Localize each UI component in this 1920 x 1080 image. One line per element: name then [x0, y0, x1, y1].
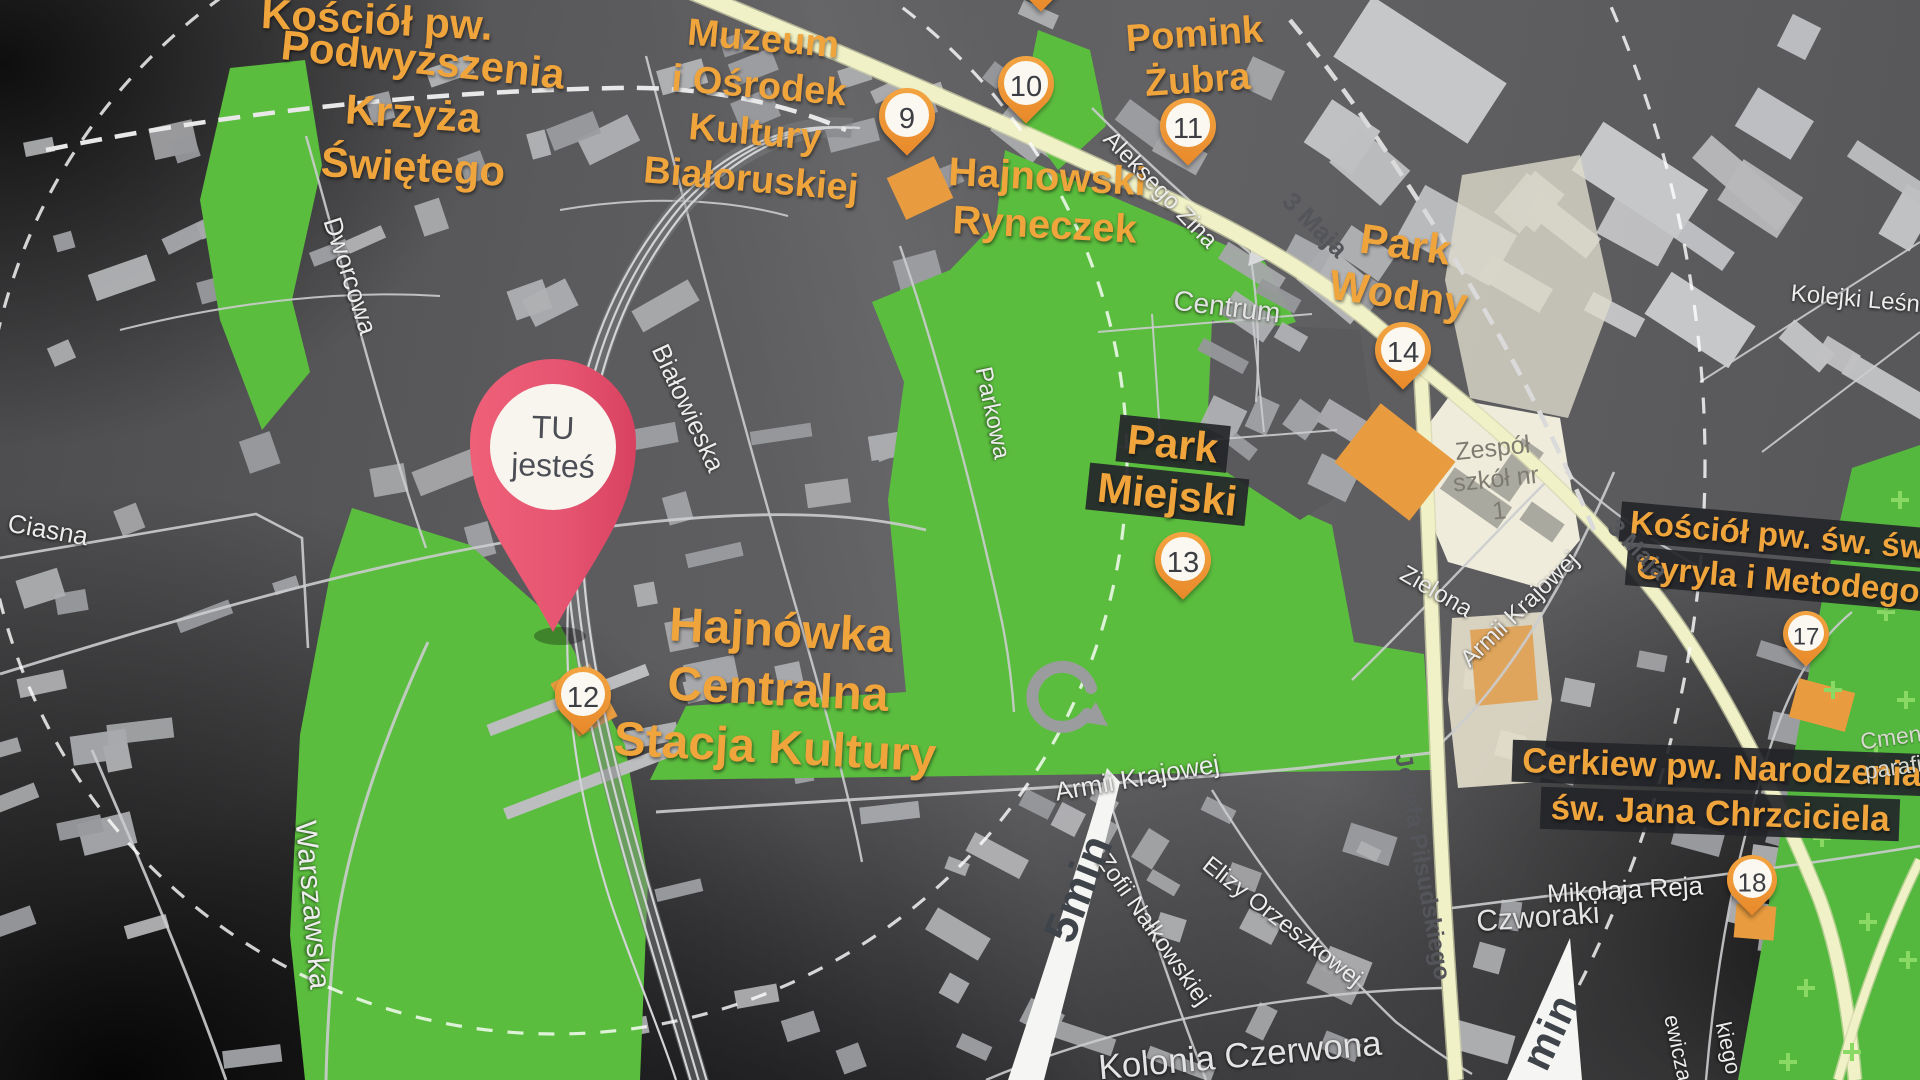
map-marker-12: 12: [555, 667, 611, 748]
map-marker-8: 8: [1013, 0, 1069, 25]
marker-number: 17: [1788, 619, 1824, 655]
map-marker-17: 17: [1783, 611, 1829, 678]
map-marker-9: 9: [879, 88, 935, 169]
map-graphics-layer: [0, 0, 1920, 1080]
marker-number: 14: [1381, 332, 1425, 376]
marker-number: 10: [1004, 66, 1048, 110]
map-marker-13: 13: [1155, 532, 1211, 613]
pin-circle: 10: [1004, 61, 1048, 105]
hajnowka-city-map-board: Kościół pw. Podwyższenia Krzyża Świętego…: [0, 0, 1920, 1080]
marker-number: 12: [561, 677, 605, 721]
pin-circle: 11: [1166, 103, 1210, 147]
map-marker-14: 14: [1375, 322, 1431, 403]
pin-circle: 9: [885, 93, 929, 137]
pin-circle: 18: [1733, 859, 1772, 898]
pin-circle: 17: [1788, 615, 1824, 651]
map-marker-10: 10: [998, 56, 1054, 137]
marker-number: 9: [885, 98, 929, 142]
map-marker-18: 18: [1727, 855, 1777, 928]
pin-icon: [1001, 0, 1080, 12]
pin-circle: 14: [1381, 327, 1425, 371]
marker-number: 18: [1733, 864, 1772, 903]
pin-circle: 13: [1161, 537, 1205, 581]
marker-number: 13: [1161, 542, 1205, 586]
map-marker-11: 11: [1160, 98, 1216, 179]
pin-circle: 12: [561, 672, 605, 716]
marker-number: 11: [1166, 108, 1210, 152]
